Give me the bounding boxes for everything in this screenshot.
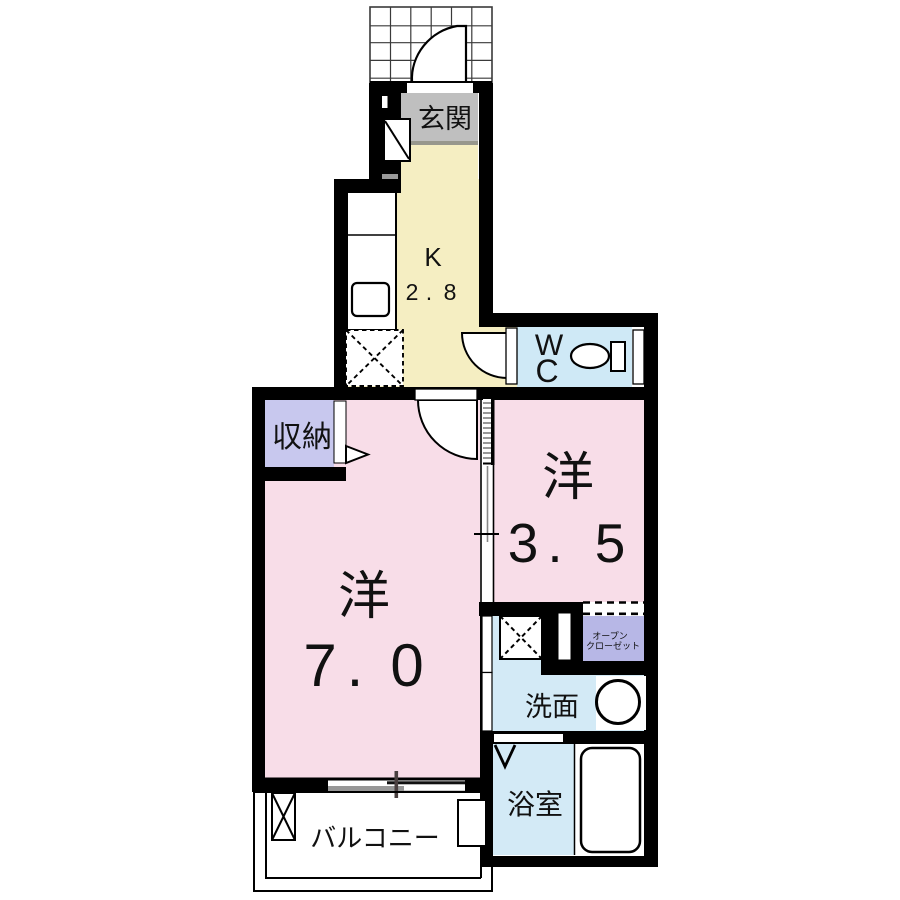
svg-text:.: .: [547, 512, 562, 574]
svg-text:0: 0: [390, 632, 423, 699]
svg-text:8: 8: [444, 279, 457, 305]
svg-text:.: .: [347, 632, 364, 699]
svg-text:.: .: [426, 279, 432, 305]
svg-text:洋: 洋: [542, 449, 594, 507]
svg-text:3: 3: [508, 512, 539, 574]
svg-text:浴室: 浴室: [507, 789, 563, 820]
svg-text:バルコニー: バルコニー: [310, 823, 439, 853]
svg-text:収納: 収納: [272, 421, 332, 454]
svg-text:洗面: 洗面: [525, 692, 579, 722]
svg-text:C: C: [535, 353, 558, 389]
svg-text:洋: 洋: [338, 568, 390, 626]
svg-text:オープン: オープン: [592, 631, 627, 641]
svg-text:7: 7: [303, 632, 336, 699]
svg-text:クローゼット: クローゼット: [586, 640, 640, 651]
svg-text:5: 5: [595, 512, 626, 574]
svg-text:K: K: [424, 242, 442, 272]
svg-text:玄関: 玄関: [418, 104, 472, 134]
svg-text:2: 2: [406, 279, 419, 305]
